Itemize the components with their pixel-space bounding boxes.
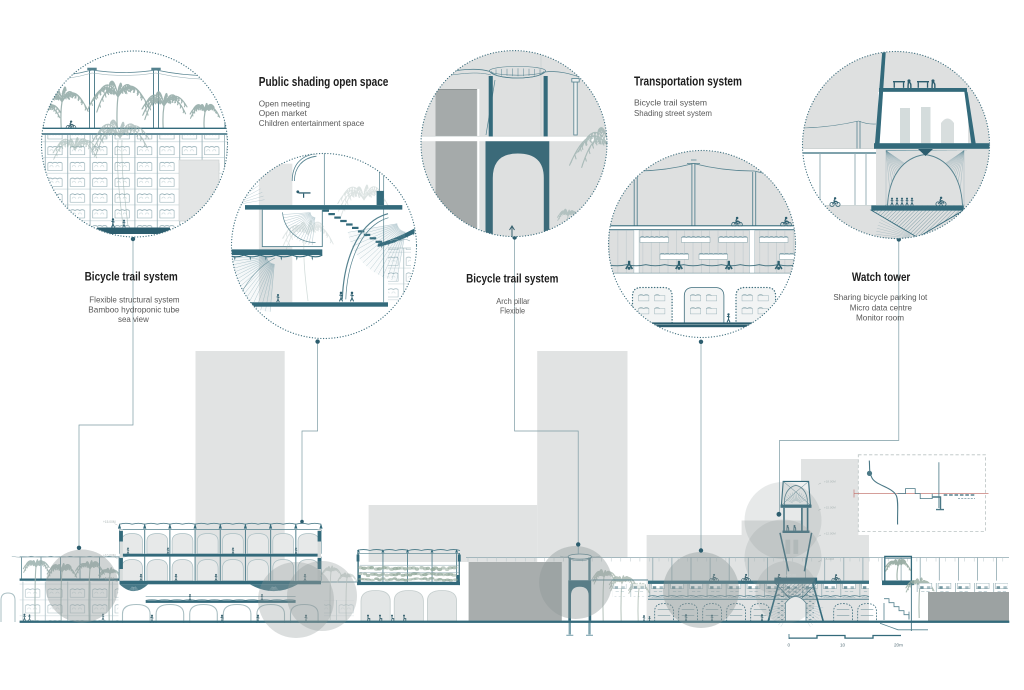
svg-text:10: 10 — [840, 643, 846, 648]
svg-text:Sharing bicycle parking lot: Sharing bicycle parking lot — [833, 292, 927, 302]
svg-text:Arch pillar: Arch pillar — [496, 296, 530, 306]
svg-text:0: 0 — [788, 643, 791, 648]
svg-text:+15.00M: +15.00M — [103, 520, 116, 524]
svg-text:Flexible: Flexible — [500, 306, 525, 316]
svg-text:Flexible structural system: Flexible structural system — [89, 295, 179, 305]
svg-text:Bicycle trail system: Bicycle trail system — [85, 270, 178, 284]
svg-text:Shading street system: Shading street system — [634, 108, 712, 118]
svg-text:Bicycle trail system: Bicycle trail system — [466, 271, 558, 285]
svg-text:Bicycle trail system: Bicycle trail system — [634, 98, 707, 108]
svg-text:+10.00M: +10.00M — [103, 554, 116, 558]
svg-text:Open market: Open market — [259, 108, 308, 118]
svg-text:Children entertainment space: Children entertainment space — [259, 118, 365, 128]
svg-text:Transportation system: Transportation system — [634, 75, 742, 89]
svg-text:Public shading open space: Public shading open space — [259, 75, 389, 89]
svg-text:Micro data centre: Micro data centre — [850, 303, 912, 313]
svg-text:+18.00M: +18.00M — [824, 480, 836, 484]
svg-text:+15.00M: +15.00M — [824, 506, 836, 510]
svg-text:+8.00M: +8.00M — [824, 557, 835, 561]
svg-text:Open meeting: Open meeting — [259, 98, 311, 108]
svg-text:Bamboo hydroponic tube: Bamboo hydroponic tube — [88, 304, 179, 314]
svg-text:20m: 20m — [894, 643, 903, 648]
svg-text:+12.00M: +12.00M — [824, 532, 836, 536]
svg-text:sea view: sea view — [118, 314, 150, 324]
svg-text:Watch tower: Watch tower — [852, 270, 911, 284]
svg-text:Monitor room: Monitor room — [856, 312, 904, 322]
